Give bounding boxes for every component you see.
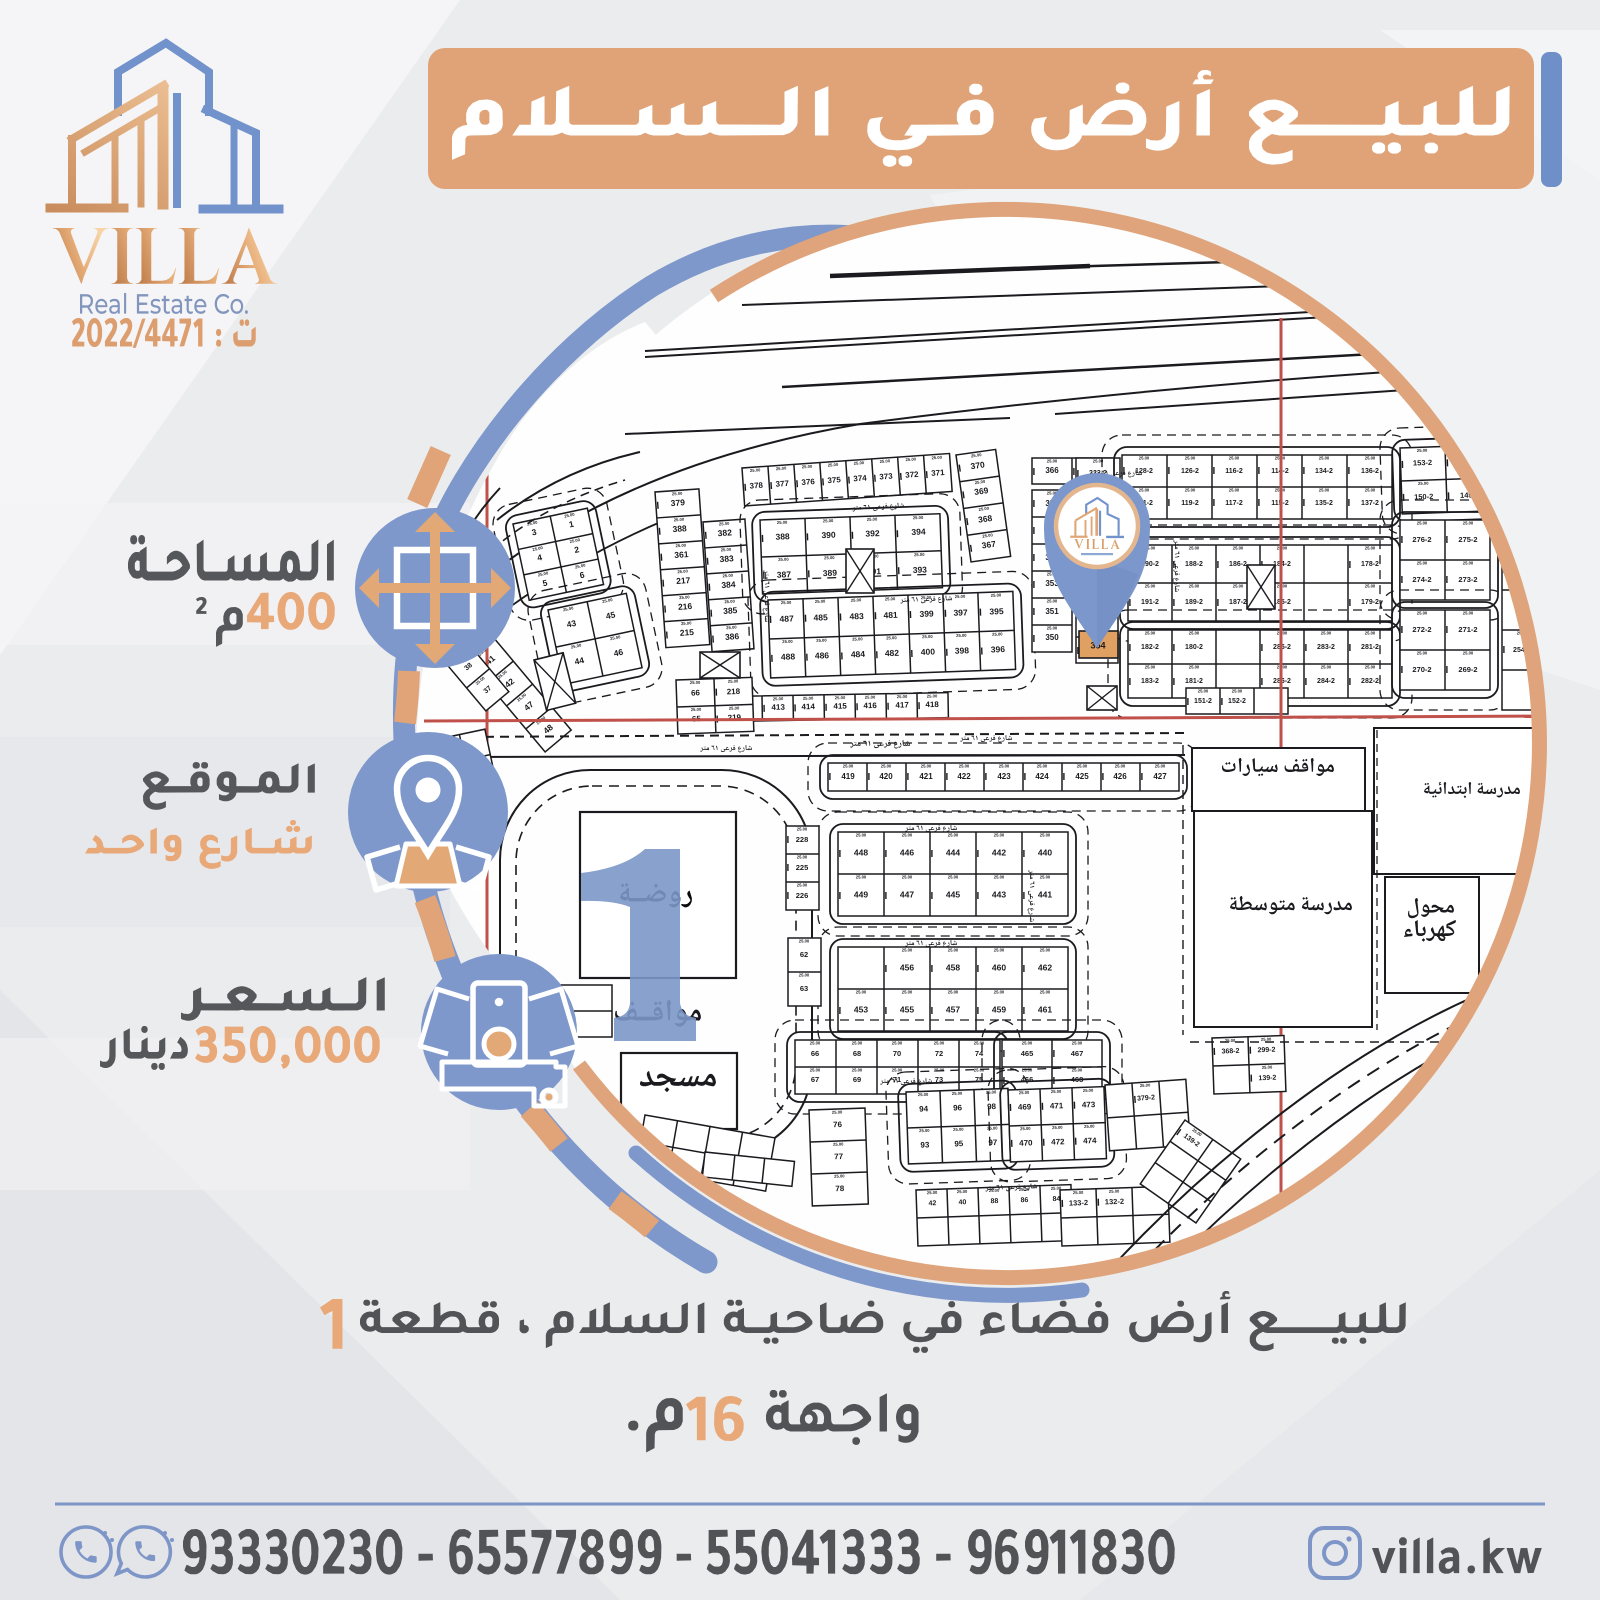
svg-text:152-2: 152-2 bbox=[1228, 698, 1246, 705]
svg-text:350: 350 bbox=[1045, 633, 1059, 642]
svg-text:95: 95 bbox=[954, 1139, 964, 1148]
svg-text:25.00: 25.00 bbox=[729, 705, 740, 710]
svg-text:420: 420 bbox=[879, 772, 893, 781]
svg-text:25.00: 25.00 bbox=[1365, 631, 1376, 636]
svg-text:25.00: 25.00 bbox=[1145, 631, 1156, 636]
svg-text:282-2: 282-2 bbox=[1361, 678, 1379, 685]
svg-text:25.00: 25.00 bbox=[927, 1190, 938, 1195]
svg-text:413: 413 bbox=[771, 703, 785, 712]
svg-text:275-2: 275-2 bbox=[1458, 535, 1477, 544]
svg-text:93: 93 bbox=[920, 1140, 930, 1149]
svg-text:182-2: 182-2 bbox=[1141, 644, 1159, 651]
svg-text:389: 389 bbox=[823, 568, 838, 578]
svg-text:25.00: 25.00 bbox=[1365, 584, 1376, 589]
svg-text:25.00: 25.00 bbox=[892, 1068, 903, 1073]
svg-text:25.00: 25.00 bbox=[856, 875, 867, 880]
svg-text:368: 368 bbox=[977, 513, 993, 525]
svg-text:25.00: 25.00 bbox=[1321, 631, 1332, 636]
svg-text:392: 392 bbox=[865, 528, 880, 538]
svg-text:132-2: 132-2 bbox=[1105, 1197, 1124, 1207]
svg-text:25.00: 25.00 bbox=[867, 516, 878, 521]
svg-text:25.00: 25.00 bbox=[1321, 665, 1332, 670]
svg-text:456: 456 bbox=[900, 962, 914, 972]
svg-text:274-2: 274-2 bbox=[1412, 575, 1431, 584]
svg-text:42: 42 bbox=[928, 1200, 936, 1207]
svg-text:25.00: 25.00 bbox=[1365, 665, 1376, 670]
svg-text:25.00: 25.00 bbox=[919, 1128, 930, 1133]
svg-text:40: 40 bbox=[958, 1199, 966, 1206]
svg-text:25.00: 25.00 bbox=[892, 1041, 903, 1046]
svg-text:25.00: 25.00 bbox=[1022, 1068, 1033, 1073]
svg-text:25.00: 25.00 bbox=[797, 883, 808, 888]
svg-text:25.00: 25.00 bbox=[902, 990, 913, 995]
svg-text:371: 371 bbox=[931, 468, 945, 478]
svg-text:25.00: 25.00 bbox=[777, 520, 788, 525]
svg-text:25.00: 25.00 bbox=[948, 990, 959, 995]
svg-text:188-2: 188-2 bbox=[1185, 561, 1203, 568]
svg-text:25.00: 25.00 bbox=[999, 764, 1010, 769]
svg-text:414: 414 bbox=[801, 702, 815, 711]
svg-text:25.00: 25.00 bbox=[832, 1109, 843, 1114]
svg-text:191-2: 191-2 bbox=[1141, 599, 1159, 606]
svg-text:472: 472 bbox=[1051, 1137, 1065, 1146]
svg-text:374: 374 bbox=[853, 473, 867, 483]
svg-text:25.00: 25.00 bbox=[948, 875, 959, 880]
svg-text:25.00: 25.00 bbox=[953, 1127, 964, 1132]
svg-text:25.00: 25.00 bbox=[816, 638, 827, 643]
svg-text:116-2: 116-2 bbox=[1225, 468, 1243, 475]
svg-text:384: 384 bbox=[721, 579, 736, 590]
svg-text:25.00: 25.00 bbox=[921, 764, 932, 769]
svg-text:25.00: 25.00 bbox=[1072, 1041, 1083, 1046]
svg-text:459: 459 bbox=[992, 1004, 1006, 1014]
svg-text:183-2: 183-2 bbox=[1141, 678, 1159, 685]
svg-text:25.00: 25.00 bbox=[690, 680, 701, 685]
svg-text:135-2: 135-2 bbox=[1315, 500, 1333, 507]
svg-text:25.00: 25.00 bbox=[854, 460, 865, 466]
svg-text:25.00: 25.00 bbox=[797, 827, 808, 832]
svg-text:25.00: 25.00 bbox=[1077, 764, 1088, 769]
svg-text:398: 398 bbox=[955, 645, 970, 655]
svg-text:25.00: 25.00 bbox=[914, 552, 925, 557]
svg-text:25.00: 25.00 bbox=[1365, 456, 1376, 461]
svg-text:25.00: 25.00 bbox=[913, 515, 924, 520]
svg-text:133-2: 133-2 bbox=[1069, 1198, 1088, 1208]
svg-text:25.00: 25.00 bbox=[994, 990, 1005, 995]
svg-text:25.00: 25.00 bbox=[948, 948, 959, 953]
svg-text:446: 446 bbox=[900, 847, 914, 857]
svg-text:66: 66 bbox=[691, 688, 701, 697]
svg-text:448: 448 bbox=[854, 847, 868, 857]
svg-text:25.00: 25.00 bbox=[1417, 448, 1428, 453]
svg-text:25.00: 25.00 bbox=[879, 458, 890, 464]
svg-text:449: 449 bbox=[854, 889, 868, 899]
svg-text:25.00: 25.00 bbox=[1262, 1064, 1273, 1069]
svg-text:25.00: 25.00 bbox=[672, 491, 683, 497]
svg-text:483: 483 bbox=[849, 611, 864, 621]
svg-text:25.00: 25.00 bbox=[799, 973, 810, 978]
svg-text:25.00: 25.00 bbox=[781, 600, 792, 605]
svg-text:382: 382 bbox=[717, 527, 732, 538]
svg-text:70: 70 bbox=[893, 1049, 901, 1058]
svg-text:376: 376 bbox=[801, 477, 815, 487]
svg-text:485: 485 bbox=[813, 612, 828, 622]
svg-text:465: 465 bbox=[1021, 1049, 1034, 1058]
svg-text:25.00: 25.00 bbox=[797, 855, 808, 860]
svg-text:68: 68 bbox=[853, 1049, 861, 1058]
svg-text:25.00: 25.00 bbox=[1083, 1088, 1094, 1093]
svg-text:383: 383 bbox=[719, 553, 734, 564]
svg-text:368-2: 368-2 bbox=[1221, 1048, 1239, 1056]
svg-text:25.00: 25.00 bbox=[918, 1092, 929, 1097]
svg-text:486: 486 bbox=[815, 650, 830, 660]
svg-text:25.00: 25.00 bbox=[955, 594, 966, 599]
svg-text:151-2: 151-2 bbox=[1194, 698, 1212, 705]
svg-text:77: 77 bbox=[834, 1152, 844, 1161]
svg-text:25.00: 25.00 bbox=[1232, 689, 1243, 694]
svg-text:441: 441 bbox=[1038, 889, 1052, 899]
svg-text:25.00: 25.00 bbox=[957, 1189, 968, 1194]
svg-text:25.00: 25.00 bbox=[815, 599, 826, 604]
svg-text:25.00: 25.00 bbox=[881, 764, 892, 769]
svg-text:25.00: 25.00 bbox=[959, 764, 970, 769]
svg-text:25.00: 25.00 bbox=[802, 464, 813, 470]
svg-text:25.00: 25.00 bbox=[865, 695, 876, 700]
svg-text:461: 461 bbox=[1038, 1004, 1052, 1014]
svg-text:181-2: 181-2 bbox=[1185, 678, 1203, 685]
svg-text:25.00: 25.00 bbox=[1145, 665, 1156, 670]
svg-text:25.00: 25.00 bbox=[1319, 456, 1330, 461]
svg-text:481: 481 bbox=[883, 610, 898, 620]
svg-text:25.00: 25.00 bbox=[1051, 1089, 1062, 1094]
svg-text:25.00: 25.00 bbox=[1463, 521, 1474, 526]
svg-text:471: 471 bbox=[1050, 1101, 1064, 1110]
svg-text:25.00: 25.00 bbox=[1229, 456, 1240, 461]
svg-text:25.00: 25.00 bbox=[776, 465, 787, 471]
svg-text:366: 366 bbox=[1045, 466, 1059, 475]
svg-text:422: 422 bbox=[957, 772, 971, 781]
svg-text:25.00: 25.00 bbox=[728, 678, 739, 683]
svg-text:25.00: 25.00 bbox=[1417, 561, 1428, 566]
svg-text:25.00: 25.00 bbox=[1040, 948, 1051, 953]
svg-text:375: 375 bbox=[827, 475, 841, 485]
svg-text:25.00: 25.00 bbox=[902, 833, 913, 838]
svg-text:473: 473 bbox=[1082, 1100, 1096, 1109]
svg-text:444: 444 bbox=[946, 847, 960, 857]
svg-text:25.00: 25.00 bbox=[905, 456, 916, 462]
svg-text:25.00: 25.00 bbox=[885, 596, 896, 601]
svg-text:273-2: 273-2 bbox=[1458, 575, 1477, 584]
svg-text:25.00: 25.00 bbox=[1365, 488, 1376, 493]
svg-text:394: 394 bbox=[911, 526, 926, 536]
svg-text:25.00: 25.00 bbox=[1189, 631, 1200, 636]
svg-text:469: 469 bbox=[1018, 1102, 1032, 1111]
svg-text:396: 396 bbox=[991, 644, 1006, 654]
svg-text:388: 388 bbox=[775, 531, 790, 541]
svg-text:442: 442 bbox=[992, 847, 1006, 857]
svg-text:88: 88 bbox=[990, 1198, 998, 1205]
svg-text:25.00: 25.00 bbox=[1047, 626, 1058, 631]
svg-text:25.00: 25.00 bbox=[1022, 1041, 1033, 1046]
svg-text:25.00: 25.00 bbox=[722, 573, 733, 579]
svg-text:416: 416 bbox=[863, 701, 877, 710]
svg-text:25.00: 25.00 bbox=[834, 1173, 845, 1178]
svg-text:153-2: 153-2 bbox=[1413, 458, 1432, 468]
svg-text:216: 216 bbox=[678, 601, 693, 612]
svg-text:25.00: 25.00 bbox=[1020, 1126, 1031, 1131]
svg-text:25.00: 25.00 bbox=[828, 462, 839, 468]
svg-text:379-2: 379-2 bbox=[1137, 1094, 1155, 1102]
svg-text:399: 399 bbox=[919, 608, 934, 618]
svg-text:386: 386 bbox=[725, 631, 740, 642]
svg-text:189-2: 189-2 bbox=[1185, 599, 1203, 606]
svg-text:25.00: 25.00 bbox=[992, 631, 1003, 636]
svg-text:467: 467 bbox=[1071, 1049, 1084, 1058]
svg-text:25.00: 25.00 bbox=[1047, 599, 1058, 604]
svg-text:179-2: 179-2 bbox=[1361, 599, 1379, 606]
svg-text:395: 395 bbox=[989, 606, 1004, 616]
svg-text:137-2: 137-2 bbox=[1361, 500, 1379, 507]
svg-text:25.00: 25.00 bbox=[1109, 1189, 1120, 1194]
svg-text:25.00: 25.00 bbox=[1019, 1090, 1030, 1095]
svg-text:25.00: 25.00 bbox=[691, 707, 702, 712]
svg-text:388: 388 bbox=[672, 523, 687, 534]
svg-text:397: 397 bbox=[953, 607, 968, 617]
svg-text:136-2: 136-2 bbox=[1361, 468, 1379, 475]
svg-text:351: 351 bbox=[1045, 607, 1059, 616]
svg-text:67: 67 bbox=[811, 1075, 819, 1084]
svg-text:460: 460 bbox=[992, 962, 1006, 972]
svg-text:25.00: 25.00 bbox=[773, 696, 784, 701]
svg-text:69: 69 bbox=[853, 1075, 861, 1084]
svg-text:299-2: 299-2 bbox=[1257, 1047, 1275, 1055]
svg-text:25.00: 25.00 bbox=[1185, 488, 1196, 493]
svg-text:462: 462 bbox=[1038, 962, 1052, 972]
svg-text:25.00: 25.00 bbox=[902, 875, 913, 880]
svg-text:474: 474 bbox=[1083, 1136, 1097, 1145]
svg-text:419: 419 bbox=[841, 772, 855, 781]
svg-text:372: 372 bbox=[905, 470, 919, 480]
svg-text:180-2: 180-2 bbox=[1185, 644, 1203, 651]
svg-text:84: 84 bbox=[1052, 1196, 1060, 1203]
svg-text:415: 415 bbox=[833, 702, 847, 711]
svg-text:217: 217 bbox=[676, 575, 691, 586]
svg-text:455: 455 bbox=[900, 1004, 914, 1014]
svg-text:178-2: 178-2 bbox=[1361, 561, 1379, 568]
svg-text:63: 63 bbox=[800, 984, 808, 993]
svg-text:25.00: 25.00 bbox=[810, 1041, 821, 1046]
svg-text:25.00: 25.00 bbox=[778, 557, 789, 562]
svg-text:453: 453 bbox=[854, 1004, 868, 1014]
svg-text:25.00: 25.00 bbox=[886, 635, 897, 640]
svg-text:272-2: 272-2 bbox=[1412, 625, 1431, 634]
svg-text:25.00: 25.00 bbox=[1185, 456, 1196, 461]
svg-text:25.00: 25.00 bbox=[810, 1068, 821, 1073]
svg-text:377: 377 bbox=[775, 479, 789, 489]
svg-text:25.00: 25.00 bbox=[1139, 488, 1150, 493]
svg-text:25.00: 25.00 bbox=[1040, 875, 1051, 880]
svg-text:25.00: 25.00 bbox=[1145, 584, 1156, 589]
svg-text:117-2: 117-2 bbox=[1225, 500, 1243, 507]
svg-text:25.00: 25.00 bbox=[1052, 1125, 1063, 1130]
svg-text:25.00: 25.00 bbox=[1140, 1082, 1151, 1088]
svg-text:25.00: 25.00 bbox=[1418, 481, 1429, 486]
svg-text:440: 440 bbox=[1038, 847, 1052, 857]
svg-text:400: 400 bbox=[921, 646, 936, 656]
svg-text:25.00: 25.00 bbox=[1229, 488, 1240, 493]
svg-text:373: 373 bbox=[879, 472, 893, 482]
svg-text:25.00: 25.00 bbox=[803, 696, 814, 701]
svg-text:25.00: 25.00 bbox=[726, 624, 737, 630]
svg-text:25.00: 25.00 bbox=[897, 694, 908, 699]
svg-text:25.00: 25.00 bbox=[750, 467, 761, 473]
svg-text:488: 488 bbox=[781, 651, 796, 661]
svg-text:25.00: 25.00 bbox=[1463, 611, 1474, 616]
svg-text:25.00: 25.00 bbox=[835, 695, 846, 700]
svg-text:284-2: 284-2 bbox=[1317, 678, 1335, 685]
svg-text:25.00: 25.00 bbox=[1084, 1124, 1095, 1129]
svg-text:128-2: 128-2 bbox=[1135, 468, 1153, 475]
svg-text:417: 417 bbox=[895, 700, 909, 709]
svg-text:482: 482 bbox=[885, 648, 900, 658]
svg-text:25.00: 25.00 bbox=[833, 1141, 844, 1146]
svg-text:387: 387 bbox=[777, 569, 792, 579]
svg-text:25.00: 25.00 bbox=[1365, 546, 1376, 551]
svg-text:62: 62 bbox=[800, 950, 808, 959]
svg-text:25.00: 25.00 bbox=[1040, 833, 1051, 838]
svg-text:25.00: 25.00 bbox=[851, 597, 862, 602]
svg-text:25.00: 25.00 bbox=[931, 455, 942, 461]
svg-text:25.00: 25.00 bbox=[1463, 561, 1474, 566]
svg-text:225: 225 bbox=[796, 863, 809, 872]
svg-text:426: 426 bbox=[1113, 772, 1127, 781]
svg-text:25.00: 25.00 bbox=[956, 633, 967, 638]
svg-text:484: 484 bbox=[851, 649, 866, 659]
svg-text:25.00: 25.00 bbox=[994, 833, 1005, 838]
svg-text:393: 393 bbox=[913, 564, 928, 574]
svg-text:424: 424 bbox=[1035, 772, 1049, 781]
svg-text:25.00: 25.00 bbox=[721, 547, 732, 553]
svg-text:94: 94 bbox=[919, 1104, 929, 1113]
svg-text:78: 78 bbox=[835, 1184, 845, 1193]
svg-text:25.00: 25.00 bbox=[922, 634, 933, 639]
svg-text:25.00: 25.00 bbox=[856, 990, 867, 995]
svg-text:25.00: 25.00 bbox=[1073, 1190, 1084, 1195]
svg-text:215: 215 bbox=[679, 627, 694, 638]
svg-text:269-2: 269-2 bbox=[1458, 665, 1477, 674]
svg-text:126-2: 126-2 bbox=[1181, 468, 1199, 475]
svg-text:25.00: 25.00 bbox=[1115, 764, 1126, 769]
svg-text:470: 470 bbox=[1019, 1138, 1033, 1147]
svg-text:25.00: 25.00 bbox=[843, 764, 854, 769]
svg-text:421: 421 bbox=[919, 772, 933, 781]
svg-text:228: 228 bbox=[796, 835, 809, 844]
svg-text:25.00: 25.00 bbox=[1417, 521, 1428, 526]
svg-text:379: 379 bbox=[670, 497, 685, 508]
svg-text:447: 447 bbox=[900, 889, 914, 899]
svg-text:25.00: 25.00 bbox=[1189, 584, 1200, 589]
svg-text:226: 226 bbox=[796, 891, 809, 900]
svg-text:25.00: 25.00 bbox=[681, 620, 692, 626]
svg-text:187-2: 187-2 bbox=[1229, 599, 1247, 606]
svg-text:25.00: 25.00 bbox=[974, 1041, 985, 1046]
svg-text:25.00: 25.00 bbox=[852, 1068, 863, 1073]
svg-text:25.00: 25.00 bbox=[948, 833, 959, 838]
svg-text:423: 423 bbox=[997, 772, 1011, 781]
svg-text:385: 385 bbox=[723, 605, 738, 616]
svg-text:218: 218 bbox=[727, 687, 741, 696]
svg-text:445: 445 bbox=[946, 889, 960, 899]
svg-text:86: 86 bbox=[1020, 1197, 1028, 1204]
svg-text:25.00: 25.00 bbox=[991, 592, 1002, 597]
svg-text:427: 427 bbox=[1153, 772, 1167, 781]
svg-text:270-2: 270-2 bbox=[1412, 665, 1431, 674]
svg-text:25.00: 25.00 bbox=[1047, 459, 1058, 464]
svg-text:25.00: 25.00 bbox=[799, 939, 810, 944]
svg-text:25.00: 25.00 bbox=[1233, 546, 1244, 551]
svg-text:25.00: 25.00 bbox=[952, 1091, 963, 1096]
svg-text:25.00: 25.00 bbox=[724, 599, 735, 605]
svg-text:390: 390 bbox=[821, 530, 836, 540]
svg-text:25.00: 25.00 bbox=[856, 833, 867, 838]
svg-text:271-2: 271-2 bbox=[1458, 625, 1477, 634]
svg-text:25.00: 25.00 bbox=[934, 1041, 945, 1046]
svg-text:25.00: 25.00 bbox=[675, 543, 686, 549]
svg-text:25.00: 25.00 bbox=[994, 948, 1005, 953]
svg-text:487: 487 bbox=[779, 613, 794, 623]
svg-text:281-2: 281-2 bbox=[1361, 644, 1379, 651]
svg-text:25.00: 25.00 bbox=[1037, 764, 1048, 769]
svg-text:25.00: 25.00 bbox=[974, 1068, 985, 1073]
svg-text:25.00: 25.00 bbox=[823, 518, 834, 523]
svg-text:443: 443 bbox=[992, 889, 1006, 899]
svg-text:186-2: 186-2 bbox=[1229, 561, 1247, 568]
svg-text:25.00: 25.00 bbox=[852, 1041, 863, 1046]
svg-text:76: 76 bbox=[833, 1120, 843, 1129]
svg-text:25.00: 25.00 bbox=[1189, 665, 1200, 670]
svg-text:25.00: 25.00 bbox=[1417, 651, 1428, 656]
svg-text:25.00: 25.00 bbox=[902, 948, 913, 953]
svg-text:276-2: 276-2 bbox=[1412, 535, 1431, 544]
svg-text:25.00: 25.00 bbox=[1319, 488, 1330, 493]
svg-text:25.00: 25.00 bbox=[1233, 584, 1244, 589]
svg-text:25.00: 25.00 bbox=[674, 517, 685, 523]
svg-text:96: 96 bbox=[953, 1103, 963, 1112]
svg-text:458: 458 bbox=[946, 962, 960, 972]
svg-text:25.00: 25.00 bbox=[1198, 689, 1209, 694]
svg-text:139-2: 139-2 bbox=[1258, 1075, 1276, 1083]
svg-text:25.00: 25.00 bbox=[1155, 764, 1166, 769]
svg-text:367: 367 bbox=[981, 539, 997, 551]
svg-text:418: 418 bbox=[925, 700, 939, 709]
svg-text:25.00: 25.00 bbox=[1139, 456, 1150, 461]
svg-text:134-2: 134-2 bbox=[1315, 468, 1333, 475]
svg-text:425: 425 bbox=[1075, 772, 1089, 781]
svg-text:283-2: 283-2 bbox=[1317, 644, 1335, 651]
svg-text:378: 378 bbox=[749, 481, 763, 491]
svg-text:66: 66 bbox=[811, 1049, 819, 1058]
svg-text:370: 370 bbox=[970, 459, 986, 471]
svg-text:25.00: 25.00 bbox=[679, 594, 690, 600]
svg-text:25.00: 25.00 bbox=[1040, 990, 1051, 995]
svg-text:25.00: 25.00 bbox=[824, 555, 835, 560]
svg-text:119-2: 119-2 bbox=[1181, 500, 1199, 507]
svg-text:72: 72 bbox=[935, 1049, 943, 1058]
svg-text:25.00: 25.00 bbox=[782, 639, 793, 644]
svg-text:25.00: 25.00 bbox=[927, 693, 938, 698]
svg-text:25.00: 25.00 bbox=[719, 521, 730, 527]
svg-text:25.00: 25.00 bbox=[994, 875, 1005, 880]
